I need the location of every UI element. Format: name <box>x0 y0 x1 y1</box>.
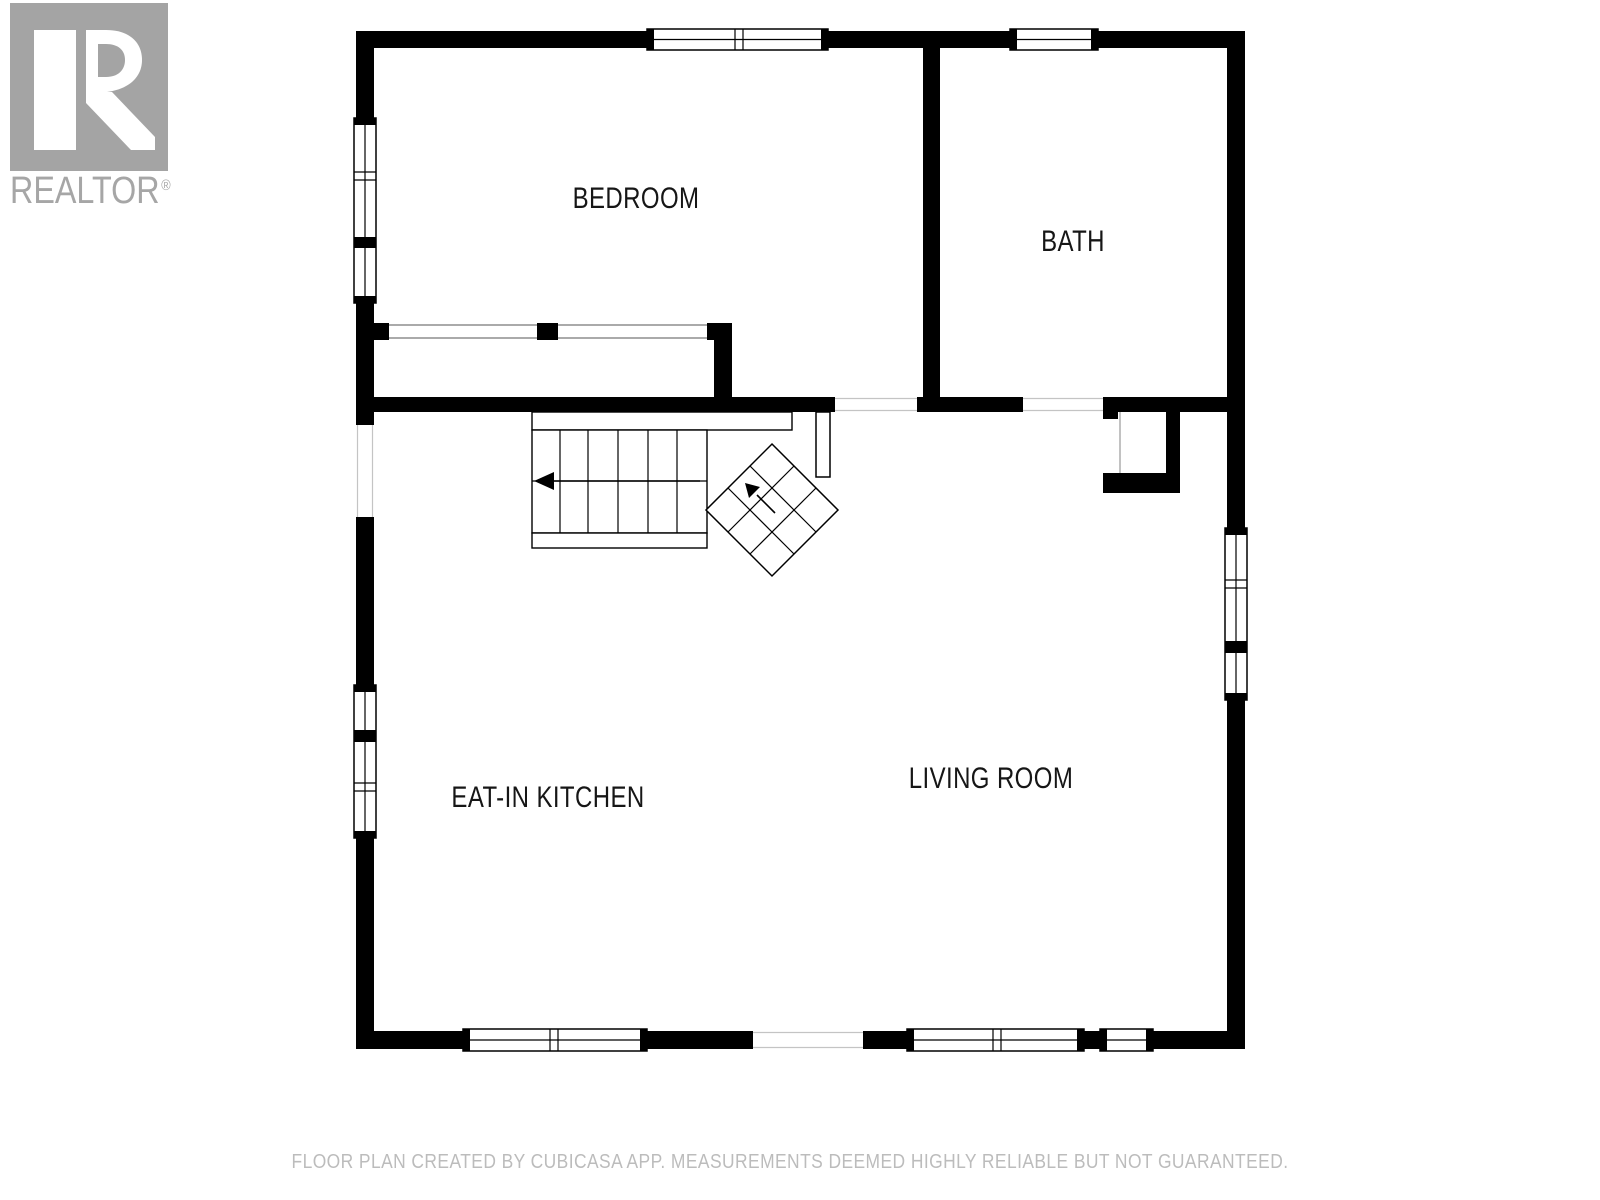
window-cap <box>354 118 376 125</box>
floor-plan-page: REALTOR® BEDROOM BATH EAT-IN KITCHEN LIV… <box>0 0 1600 1200</box>
closet-wall-stub <box>374 323 389 340</box>
window-cap <box>1225 693 1247 700</box>
window-cap <box>1100 1029 1107 1051</box>
stair-landing <box>532 412 792 430</box>
window-cap <box>1146 1029 1153 1051</box>
wall-left-1 <box>356 31 374 118</box>
window-cap <box>354 685 376 692</box>
wall-top-left <box>356 31 647 48</box>
wall-left-4 <box>356 838 374 1049</box>
window-separator <box>1225 641 1247 653</box>
window-cap <box>1077 1029 1084 1051</box>
stair-bottom-step <box>532 533 707 548</box>
disclaimer-text: FLOOR PLAN CREATED BY CUBICASA APP. MEAS… <box>292 1150 1289 1175</box>
window-cap <box>907 1029 914 1051</box>
window-separator <box>354 237 376 248</box>
room-label-eat-in-kitchen: EAT-IN KITCHEN <box>451 783 644 813</box>
wall-middle-2 <box>917 397 1023 412</box>
room-label-bath: BATH <box>1041 227 1105 257</box>
closet-wall-mid <box>537 323 558 340</box>
room-label-living-room: LIVING ROOM <box>909 764 1073 794</box>
window-cap <box>640 1029 647 1051</box>
window-cap <box>354 831 376 838</box>
alcove-bottom-wall <box>1103 473 1168 493</box>
wall-top-right <box>1098 31 1245 48</box>
closet-wall-right <box>714 340 732 397</box>
window-cap <box>1225 528 1247 535</box>
wall-left-2 <box>356 303 374 425</box>
wall-top-mid <box>828 31 1010 48</box>
wall-bottom-jamb <box>1084 1031 1100 1049</box>
closet-wall-corner <box>707 323 732 340</box>
window-cap <box>354 296 376 303</box>
wall-bottom-2 <box>647 1031 753 1049</box>
window-cap <box>1010 29 1017 50</box>
wall-left-3 <box>356 517 374 685</box>
window-cap <box>647 29 654 50</box>
floorplan-drawing <box>0 0 1600 1200</box>
alcove-right-wall <box>1166 412 1180 493</box>
wall-divider-bed-bath <box>923 48 940 397</box>
wall-middle-1 <box>374 397 835 412</box>
window-cap <box>821 29 828 50</box>
wall-bottom-4 <box>1153 1031 1245 1049</box>
wall-bottom-3 <box>863 1031 907 1049</box>
alcove-stub <box>1103 412 1118 419</box>
window-cap <box>463 1029 470 1051</box>
window-cap <box>1091 29 1098 50</box>
wall-bottom-1 <box>356 1031 463 1049</box>
wall-right-1 <box>1227 31 1245 528</box>
wall-right-2 <box>1227 700 1245 1049</box>
window-separator <box>354 730 376 742</box>
door-leaf <box>816 412 830 477</box>
wall-middle-3 <box>1103 397 1227 412</box>
room-label-bedroom: BEDROOM <box>573 184 700 214</box>
